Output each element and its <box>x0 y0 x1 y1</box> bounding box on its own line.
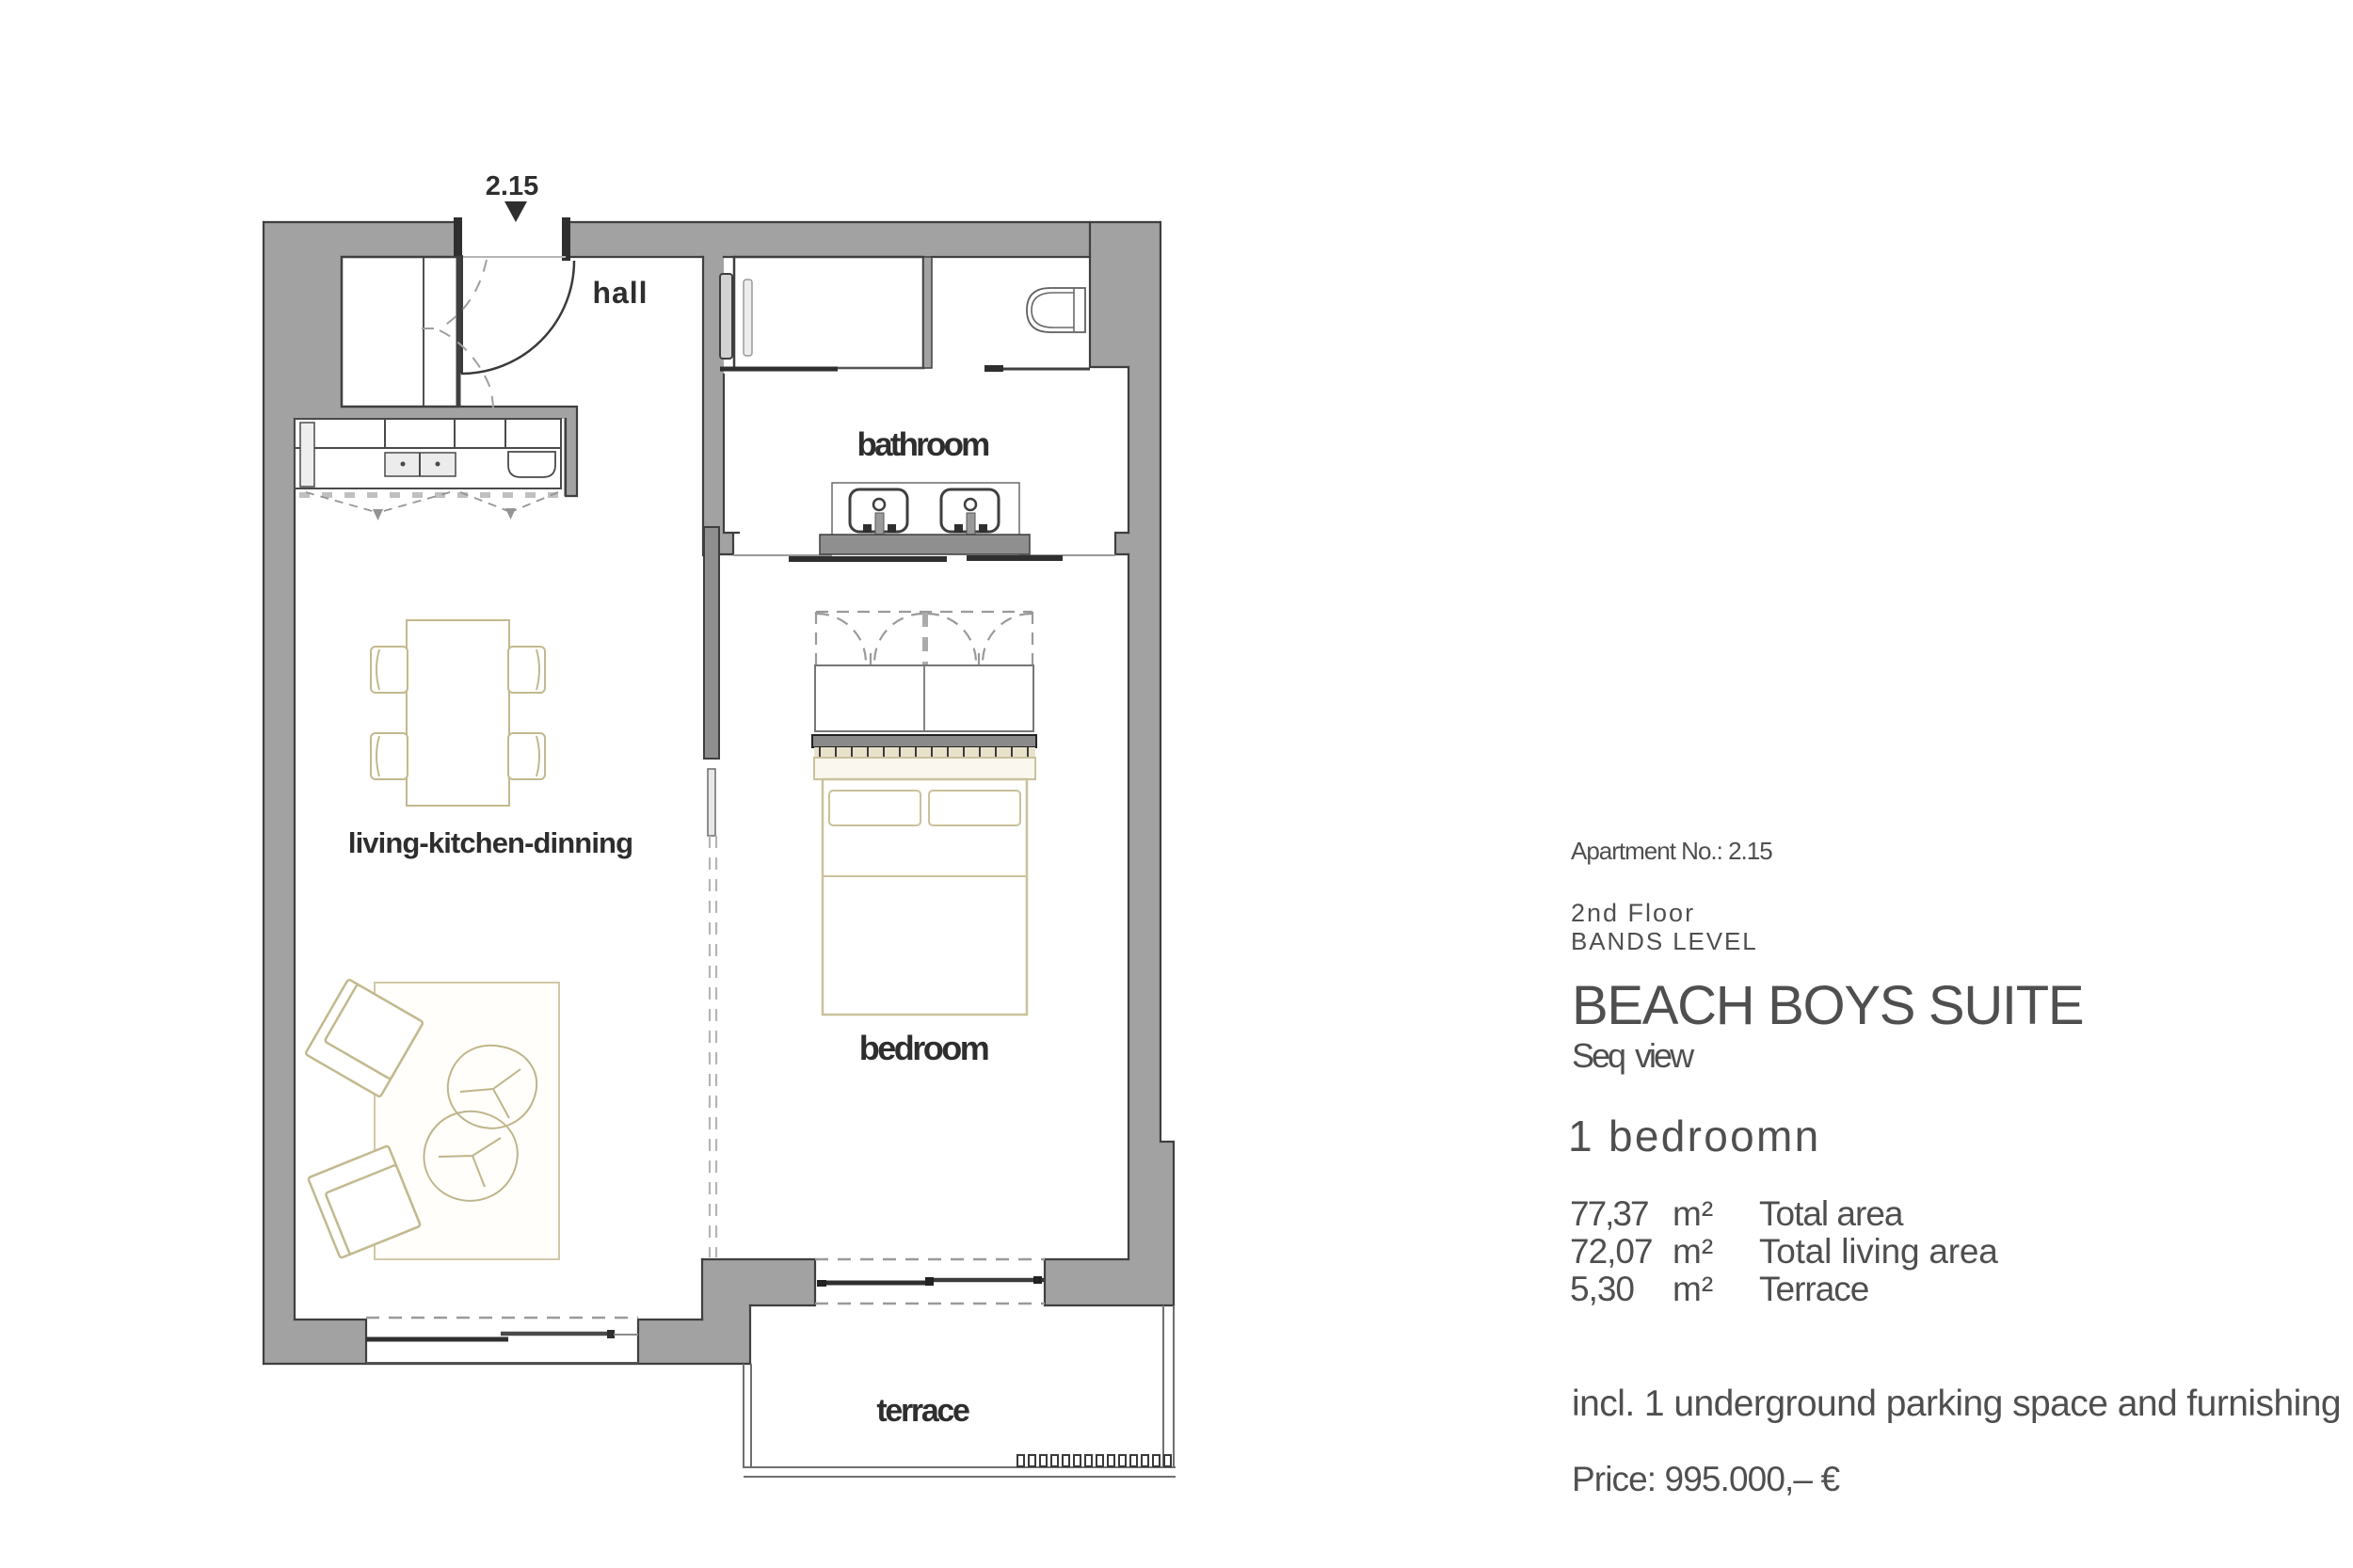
svg-text:incl. 1 underground parking sp: incl. 1 underground parking space and fu… <box>1572 1384 2341 1424</box>
svg-text:m²: m² <box>1673 1232 1713 1271</box>
svg-text:living-kitchen-dinning: living-kitchen-dinning <box>348 826 632 859</box>
svg-text:BANDS LEVEL: BANDS LEVEL <box>1571 927 1758 955</box>
svg-text:Seq view: Seq view <box>1572 1036 1695 1075</box>
svg-text:Apartment No.: 2.15: Apartment No.: 2.15 <box>1571 837 1772 865</box>
svg-text:Total area: Total area <box>1759 1194 1904 1233</box>
svg-text:77,37: 77,37 <box>1570 1194 1648 1233</box>
svg-text:1 bedroomn: 1 bedroomn <box>1568 1112 1821 1160</box>
svg-text:5,30: 5,30 <box>1570 1270 1634 1308</box>
svg-text:2.15: 2.15 <box>486 171 538 201</box>
svg-text:2nd Floor: 2nd Floor <box>1571 899 1695 927</box>
svg-text:m²: m² <box>1673 1270 1713 1308</box>
svg-text:bedroom: bedroom <box>859 1029 988 1067</box>
svg-text:hall: hall <box>592 276 648 310</box>
svg-text:BEACH BOYS SUITE: BEACH BOYS SUITE <box>1572 975 2083 1036</box>
svg-text:terrace: terrace <box>876 1393 969 1429</box>
svg-text:Terrace: Terrace <box>1759 1270 1868 1308</box>
svg-text:m²: m² <box>1673 1194 1713 1233</box>
svg-text:72,07: 72,07 <box>1570 1232 1653 1271</box>
svg-text:bathroom: bathroom <box>857 426 989 463</box>
svg-text:Price: 995.000,– €: Price: 995.000,– € <box>1572 1460 1840 1498</box>
svg-text:Total living area: Total living area <box>1759 1232 1998 1271</box>
